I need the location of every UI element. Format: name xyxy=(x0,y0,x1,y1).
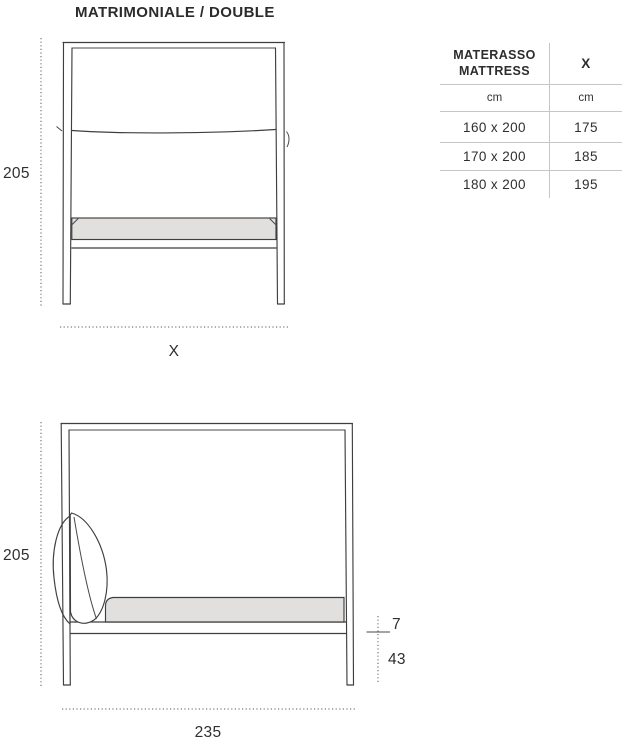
side-right-post-inner xyxy=(345,430,347,685)
table-header-mattress-line2: MATTRESS xyxy=(459,64,530,80)
front-left-post-inner xyxy=(70,48,72,304)
table-row-mattress-size: 170 x 200 xyxy=(440,143,550,171)
side-width-dim-label: 235 xyxy=(195,724,222,741)
table-header-mattress: MATERASSO MATTRESS xyxy=(440,43,550,85)
front-width-dimension: X xyxy=(60,327,288,360)
table-row-mattress-size: 160 x 200 xyxy=(440,112,550,143)
front-mattress xyxy=(72,218,276,240)
rail-thickness-label: 7 xyxy=(392,616,401,633)
table-row-x-value: 185 xyxy=(550,143,622,171)
front-height-dim-label: 205 xyxy=(3,165,30,182)
side-height-dim-label: 205 xyxy=(3,547,30,564)
front-headboard-line xyxy=(72,130,276,133)
front-view-drawing xyxy=(57,43,290,305)
side-width-dimension: 235 xyxy=(62,709,355,741)
table-row-x-value: 195 xyxy=(550,171,622,198)
front-left-post-outer xyxy=(63,43,64,305)
front-left-hook-mark xyxy=(57,127,63,132)
mattress-size-table: MATERASSO MATTRESS X cm cm 160 x 200 175… xyxy=(440,43,622,198)
side-mattress xyxy=(106,598,345,623)
side-view-drawing xyxy=(53,424,353,686)
side-right-post-outer xyxy=(352,424,353,686)
front-height-dimension: 205 xyxy=(3,38,41,308)
side-height-dimension: 205 xyxy=(3,422,41,686)
table-row-mattress-size: 180 x 200 xyxy=(440,171,550,198)
frame-height-label: 43 xyxy=(388,651,406,668)
spec-sheet: MATRIMONIALE / DOUBLE xyxy=(0,0,626,742)
front-right-hook-mark xyxy=(287,132,290,148)
table-header-x: X xyxy=(550,43,622,85)
rail-dimensions: 7 43 xyxy=(367,616,406,683)
front-right-post-inner xyxy=(276,48,278,304)
table-row-x-value: 175 xyxy=(550,112,622,143)
table-header-mattress-line1: MATERASSO xyxy=(453,48,536,64)
table-unit-col2: cm xyxy=(550,85,622,112)
table-unit-col1: cm xyxy=(440,85,550,112)
front-width-dim-label: X xyxy=(169,343,180,360)
